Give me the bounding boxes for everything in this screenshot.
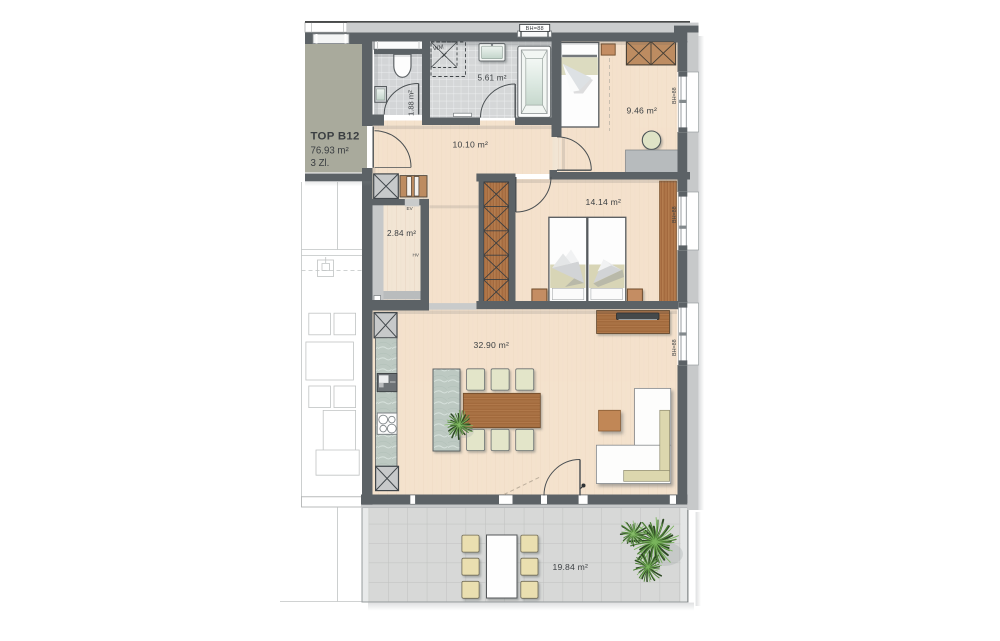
svg-text:10.10 m²: 10.10 m²: [453, 140, 489, 150]
svg-text:14.14 m²: 14.14 m²: [586, 197, 622, 207]
svg-text:1.88 m²: 1.88 m²: [407, 90, 416, 116]
svg-text:BH=88: BH=88: [672, 206, 678, 223]
svg-text:19.84 m²: 19.84 m²: [553, 562, 589, 572]
svg-text:5.61 m²: 5.61 m²: [478, 74, 507, 83]
svg-text:2.84 m²: 2.84 m²: [387, 229, 416, 238]
svg-text:BH=88: BH=88: [672, 87, 678, 104]
svg-text:TOP B12: TOP B12: [311, 131, 360, 143]
svg-text:EV: EV: [407, 206, 414, 211]
svg-text:9.46 m²: 9.46 m²: [627, 106, 658, 116]
svg-text:BH=88: BH=88: [672, 339, 678, 356]
svg-text:BH=88: BH=88: [526, 26, 544, 32]
svg-text:76.93 m²: 76.93 m²: [311, 146, 350, 157]
svg-text:3 Zl.: 3 Zl.: [311, 158, 330, 169]
svg-text:HV: HV: [413, 253, 420, 258]
svg-text:32.90 m²: 32.90 m²: [474, 340, 510, 350]
